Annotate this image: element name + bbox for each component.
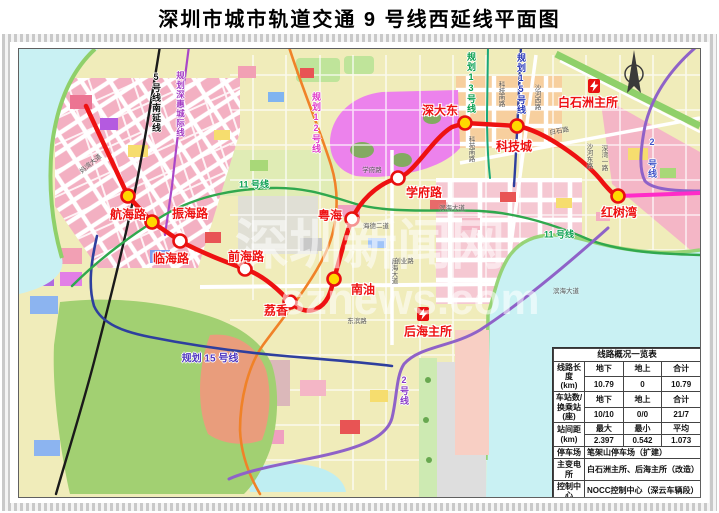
cell-value: 21/7 bbox=[662, 407, 700, 422]
map-canvas: N 深圳新闻网 sznews.com 航海路 振海路 临海路 前海路 荔香 南油… bbox=[19, 49, 700, 497]
station-label-kejicheng: 科技城 bbox=[496, 138, 532, 155]
cell-value: 10/10 bbox=[585, 407, 624, 422]
watermark-cn: 深圳新闻网 bbox=[235, 201, 505, 280]
station-marker-regular bbox=[392, 172, 405, 185]
station-label-hanghailu: 航海路 bbox=[110, 206, 146, 223]
road-label: 沙河东路 bbox=[583, 143, 593, 169]
station-marker-transfer bbox=[612, 190, 625, 203]
cell-value: 1.073 bbox=[662, 435, 700, 447]
cell-value: NOCC控制中心（深云车辆段） bbox=[585, 480, 701, 497]
line-overview-table: 线路概况一览表 线路长度(km) 地下 地上 合计 10.79 0 10.79 … bbox=[553, 348, 700, 497]
watermark-en: sznews.com bbox=[280, 275, 539, 325]
line-label-line15-bottom: 规划 15 号线 bbox=[182, 350, 239, 365]
col-header: 地上 bbox=[623, 361, 662, 376]
station-label-linhailu: 临海路 bbox=[153, 250, 189, 267]
line-overview-panel: 线路概况一览表 线路长度(km) 地下 地上 合计 10.79 0 10.79 … bbox=[552, 347, 700, 497]
col-header: 合计 bbox=[662, 361, 700, 376]
facility-label-houhai: 后海主所 bbox=[404, 323, 452, 340]
road-label: 沙河西路 bbox=[531, 84, 541, 110]
col-header: 最小 bbox=[623, 422, 662, 434]
road-label: 滨海大道 bbox=[439, 202, 465, 212]
line-label-shenhui: 规划深惠城际线 bbox=[176, 71, 185, 138]
page-title: 深圳市城市轨道交通 9 号线西延线平面图 bbox=[0, 3, 719, 32]
line-label-line5-south: 5号线南延线 bbox=[151, 72, 160, 133]
col-header: 地下 bbox=[585, 361, 624, 376]
station-label-qianhailu: 前海路 bbox=[228, 248, 264, 265]
road-label: 深湾一路 bbox=[598, 145, 608, 171]
station-marker-transfer bbox=[459, 117, 472, 130]
col-header: 地下 bbox=[585, 392, 624, 407]
row-label-stations: 车站数/换乘站(座) bbox=[554, 392, 585, 423]
station-label-nanyou: 南油 bbox=[351, 281, 375, 298]
station-marker-transfer bbox=[146, 216, 159, 229]
row-label-length: 线路长度(km) bbox=[554, 361, 585, 392]
row-label-depot: 停车场 bbox=[554, 447, 585, 459]
station-label-shendadong: 深大东 bbox=[422, 102, 458, 119]
cell-value: 笔架山停车场（扩建） bbox=[585, 447, 701, 459]
col-header: 合计 bbox=[662, 392, 700, 407]
station-label-zhenhailu: 振海路 bbox=[172, 205, 208, 222]
table-title: 线路概况一览表 bbox=[554, 349, 701, 362]
row-label-control: 控制中心 bbox=[554, 480, 585, 497]
line-label-line11-east: 11 号线 bbox=[544, 228, 574, 241]
line-label-line15-top: 规划15号线 bbox=[516, 53, 525, 115]
line-label-line12: 规划12号线 bbox=[311, 92, 320, 154]
col-header: 平均 bbox=[662, 422, 700, 434]
cell-value: 0 bbox=[623, 377, 662, 392]
north-letter: N bbox=[631, 70, 637, 79]
lightning-icon bbox=[588, 79, 600, 93]
station-marker-transfer bbox=[511, 120, 524, 133]
road-label: 海德二道 bbox=[363, 220, 389, 230]
facility-label-baishizhou: 白石洲主所 bbox=[558, 94, 618, 111]
road-label: 滨海大道 bbox=[553, 285, 579, 295]
cell-value: 10.79 bbox=[585, 377, 624, 392]
cell-value: 2.397 bbox=[585, 435, 624, 447]
window: 深圳市城市轨道交通 9 号线西延线平面图 bbox=[0, 0, 719, 513]
col-header: 最大 bbox=[585, 422, 624, 434]
row-label-substation: 主变电所 bbox=[554, 459, 585, 480]
cell-value: 0.542 bbox=[623, 435, 662, 447]
cell-value: 10.79 bbox=[662, 377, 700, 392]
road-label: 科苑南路 bbox=[465, 136, 475, 162]
road-label: 学府路 bbox=[362, 164, 382, 174]
col-header: 地上 bbox=[623, 392, 662, 407]
station-label-hongshuwan: 红树湾 bbox=[601, 204, 637, 221]
station-label-xuefulu: 学府路 bbox=[406, 184, 442, 201]
station-label-yuehai: 粤海 bbox=[318, 207, 342, 224]
road-label: 创业路 bbox=[394, 255, 414, 265]
station-marker-transfer bbox=[122, 190, 135, 203]
line-label-line2-northeast: 2 号线 bbox=[647, 137, 656, 179]
station-marker-regular bbox=[174, 235, 187, 248]
line-label-line11-west: 11 号线 bbox=[239, 178, 269, 191]
road-label: 东滨路 bbox=[347, 315, 367, 325]
row-label-spacing: 站间距(km) bbox=[554, 422, 585, 446]
cell-value: 0/0 bbox=[623, 407, 662, 422]
line-label-line13: 规划13号线 bbox=[466, 52, 475, 114]
cell-value: 白石洲主所、后海主所（改造） bbox=[585, 459, 701, 480]
line-label-line2-south: 2号线 bbox=[399, 375, 408, 406]
station-label-lixiang: 荔香 bbox=[264, 302, 288, 319]
road-label: 科技南路 bbox=[495, 81, 505, 107]
